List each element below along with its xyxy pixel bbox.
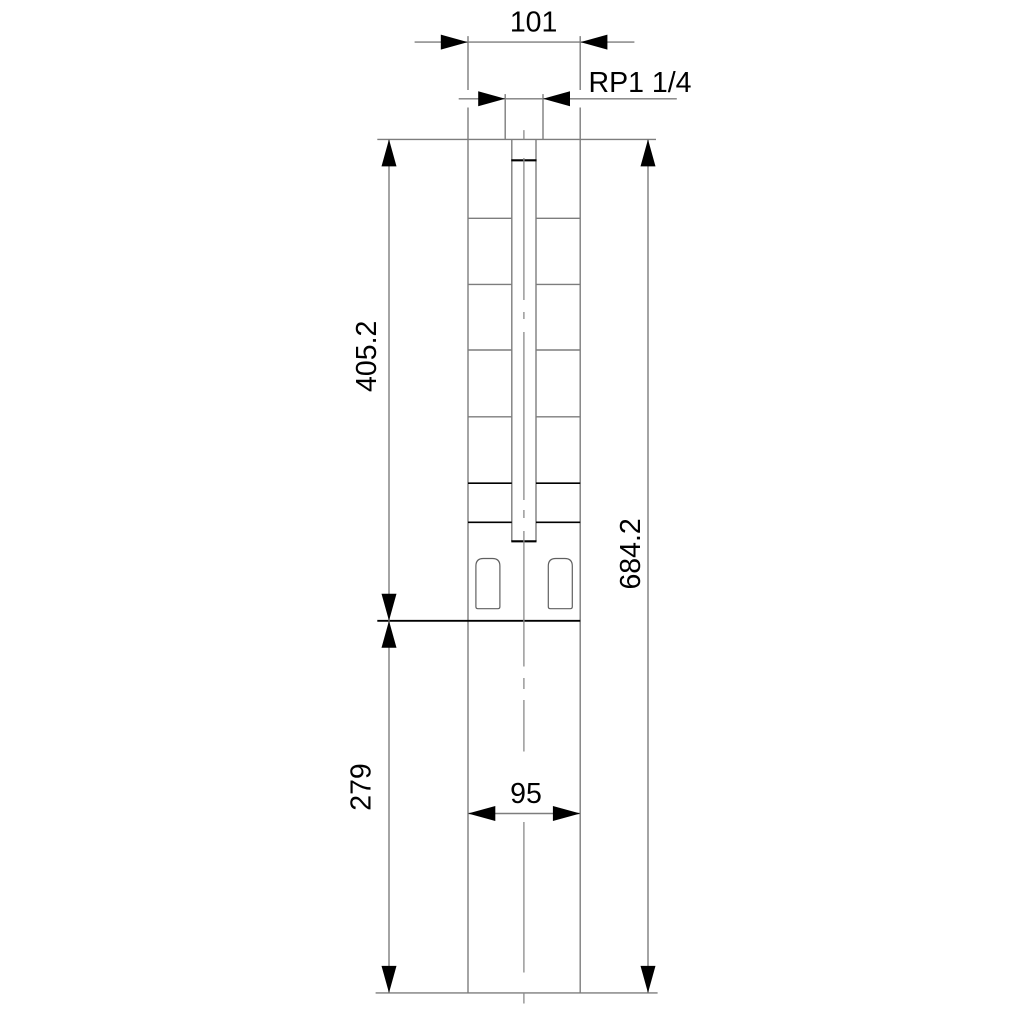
svg-text:RP1 1/4: RP1 1/4	[589, 67, 692, 99]
svg-text:101: 101	[510, 7, 558, 39]
svg-text:95: 95	[510, 778, 542, 810]
svg-text:684.2: 684.2	[615, 518, 647, 589]
svg-text:405.2: 405.2	[351, 321, 383, 392]
svg-text:279: 279	[346, 763, 378, 811]
